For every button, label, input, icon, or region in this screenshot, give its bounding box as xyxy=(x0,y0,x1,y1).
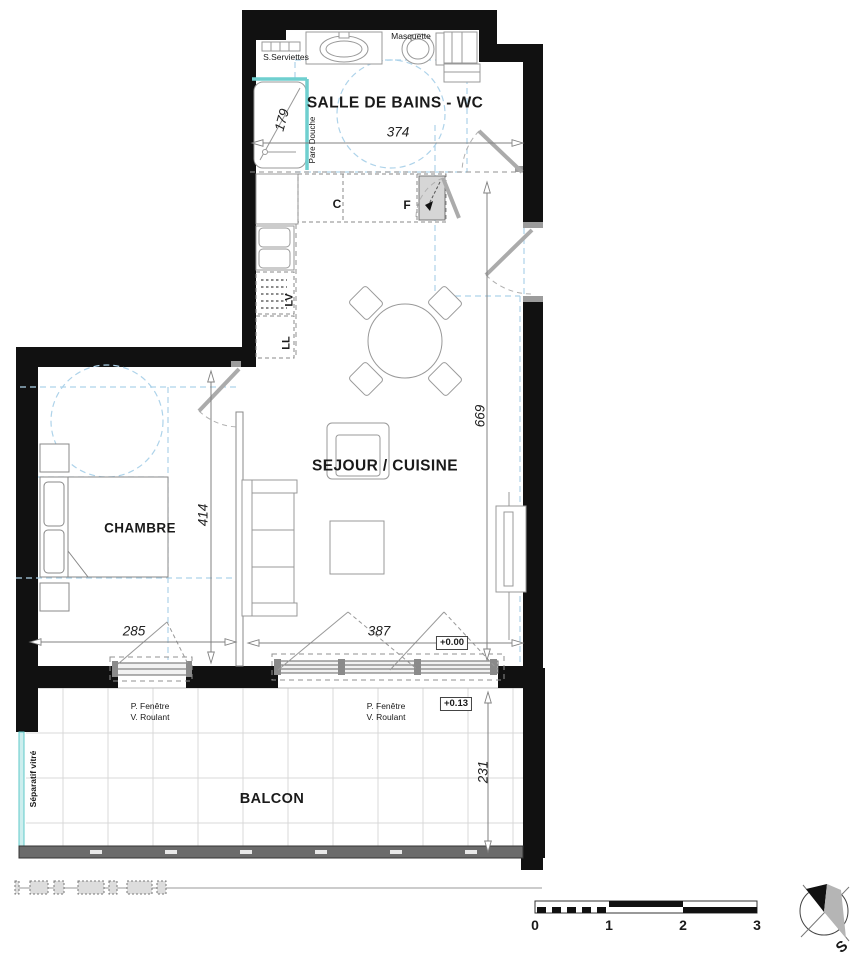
towel-dryer-label: S.Serviettes xyxy=(263,53,309,62)
glass-divider-label: Séparatif vitré xyxy=(29,751,38,808)
cooktop-label: C xyxy=(333,198,342,210)
level-balcony: +0.13 xyxy=(440,697,472,711)
counter xyxy=(256,174,298,224)
washer-label: LL xyxy=(282,336,293,349)
window1-label-line2: V. Roulant xyxy=(131,713,170,722)
below-grade-hatch xyxy=(15,881,166,894)
entry-door-leaf xyxy=(486,230,532,275)
chair xyxy=(427,285,462,320)
dim-living-width: 387 xyxy=(368,624,391,638)
scale-tick-3: 3 xyxy=(753,918,761,932)
room-label-bathroom: SALLE DE BAINS - WC xyxy=(307,95,483,111)
chair xyxy=(427,361,462,396)
window2-label-line2: V. Roulant xyxy=(367,713,406,722)
floorplan-page: Masquette S.Serviettes Pare Douche 179 S… xyxy=(0,0,860,961)
room-label-bedroom: CHAMBRE xyxy=(104,521,176,535)
living-furniture xyxy=(242,423,526,640)
towel-dryer xyxy=(262,42,300,51)
bedroom-door-leaf xyxy=(199,369,239,411)
scale-tick-0: 0 xyxy=(531,918,539,932)
coffee-table xyxy=(330,521,384,574)
bathroom-door-leaf xyxy=(479,131,522,172)
level-interior: +0.00 xyxy=(436,636,468,650)
living-window xyxy=(278,661,498,673)
sofa-seat xyxy=(252,493,294,603)
dim-balcony-depth: 231 xyxy=(476,761,490,784)
room-label-living: SEJOUR / CUISINE xyxy=(312,458,458,474)
room-label-balcony: BALCON xyxy=(240,792,304,807)
dim-bathroom-width: 374 xyxy=(387,125,410,139)
masquette-label: Masquette xyxy=(391,32,431,41)
fridge-label: F xyxy=(403,199,410,211)
floorplan-drawing xyxy=(0,0,860,961)
scale-tick-1: 1 xyxy=(605,918,613,932)
glass-divider-line xyxy=(19,732,24,858)
sofa-arm xyxy=(252,480,297,493)
balcony-floor-grid xyxy=(26,688,523,846)
duct-box xyxy=(444,32,477,63)
dining-table xyxy=(368,304,442,378)
balcony-elements xyxy=(15,732,542,894)
scale-bar xyxy=(535,901,757,913)
shower-screen-label: Pare Douche xyxy=(309,117,317,164)
dishwasher-label: LV xyxy=(285,293,296,306)
scale-tick-2: 2 xyxy=(679,918,687,932)
dashed-boundaries xyxy=(110,172,523,681)
dim-bedroom-length: 414 xyxy=(196,504,210,527)
dim-bedroom-width: 285 xyxy=(123,624,146,638)
dining-set xyxy=(348,285,462,396)
nightstand xyxy=(40,583,69,611)
window2-label-line1: P. Fenêtre xyxy=(367,702,406,711)
nightstand xyxy=(40,444,69,472)
pillow xyxy=(44,482,64,526)
sofa-arm xyxy=(252,603,297,616)
dim-living-length: 669 xyxy=(473,405,487,428)
compass-needle-gray xyxy=(824,884,846,938)
north-compass xyxy=(800,884,849,941)
sofa-back xyxy=(242,480,252,616)
compass-needle-black xyxy=(806,884,827,912)
window1-label-line1: P. Fenêtre xyxy=(131,702,170,711)
pillow xyxy=(44,530,64,573)
